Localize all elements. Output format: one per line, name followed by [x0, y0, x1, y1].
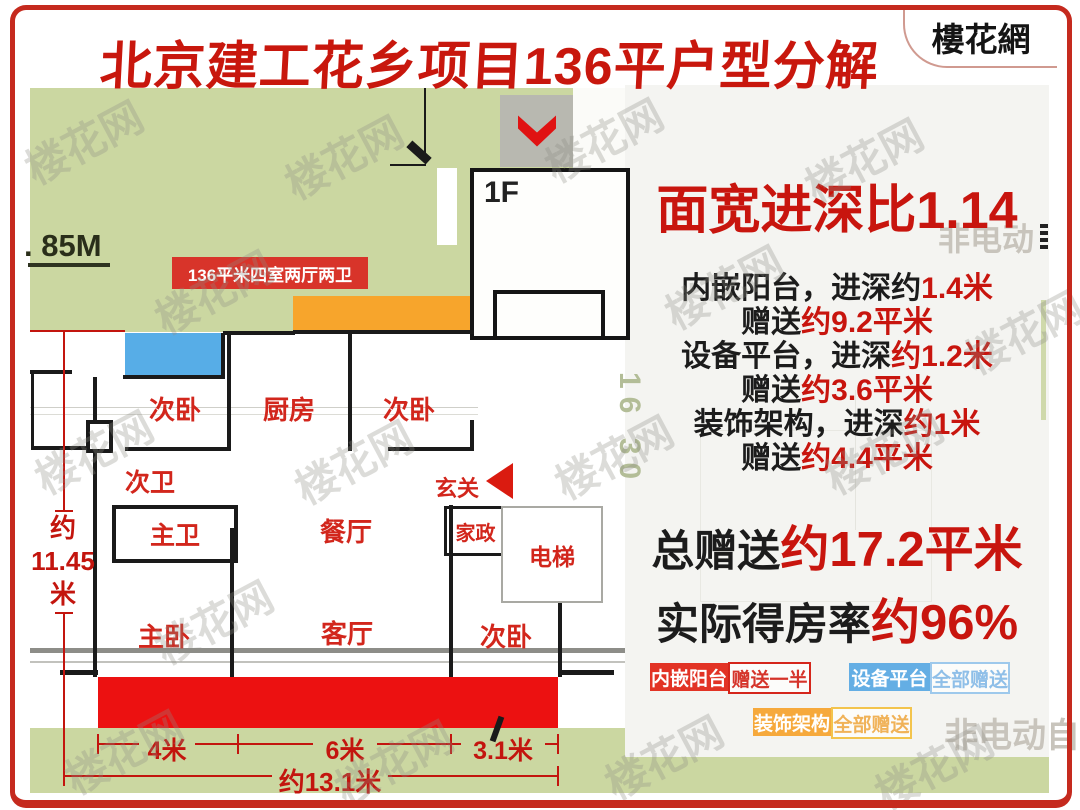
plan-white-topright [573, 88, 625, 168]
wall [31, 446, 87, 450]
wall [348, 333, 352, 451]
rate-line: 实际得房率约96% [625, 583, 1049, 654]
red-topline [30, 330, 125, 332]
dim-label-vertical: 约 11.45 米 [28, 512, 98, 611]
room-label: 次卧 [123, 390, 227, 427]
chevron-down-icon [512, 111, 562, 151]
dim-label: 3.1米 [459, 731, 547, 767]
total-giveaway-line: 总赠送约17.2平米 [625, 510, 1049, 581]
cad-vertical-line [424, 88, 426, 160]
info-line-black: 内嵌阳台，进深约 [681, 272, 921, 305]
site-logo: 樓花網 [903, 8, 1057, 68]
room-label-elevator: 电梯 [529, 538, 575, 572]
info-line-black: 赠送 [741, 442, 801, 475]
legend-equipment-name: 设备平台 [849, 663, 930, 691]
legend-decor-name: 装饰架构 [753, 708, 831, 736]
info-line: 赠送约3.6平米 [625, 374, 1049, 408]
rail-line-thin [30, 661, 625, 663]
dim-line [98, 743, 139, 745]
total-red: 约17.2平米 [780, 523, 1022, 577]
elevation-underline [28, 263, 110, 267]
dim-text: 11.45 [28, 545, 98, 578]
legend-equipment-value: 全部赠送 [930, 662, 1010, 694]
dim-tick [55, 612, 73, 614]
wall [558, 601, 562, 677]
room-label: 次卧 [456, 617, 556, 654]
room-label: 餐厅 [298, 512, 394, 549]
entry-arrow-icon [486, 463, 513, 499]
dim-line [195, 743, 313, 745]
gray-entry-box [500, 95, 573, 167]
room-label-housekeeping: 家政 [456, 517, 496, 546]
legend-decor-value: 全部赠送 [831, 707, 912, 739]
info-line-red: 约3.6平米 [801, 374, 933, 407]
elevator-box: 电梯 [501, 506, 603, 603]
legend-balcony-name: 内嵌阳台 [650, 663, 728, 691]
wall [293, 330, 474, 334]
dim-text: 约 [28, 512, 98, 545]
dim-line-vertical [63, 614, 65, 776]
wall [221, 333, 225, 379]
door-jamb [437, 168, 457, 245]
wall [558, 670, 614, 675]
dim-line [377, 743, 461, 745]
wall [388, 447, 474, 451]
info-line: 赠送约4.4平米 [625, 442, 1049, 476]
wall [223, 331, 295, 335]
panel-green-strip [625, 757, 1049, 793]
room-label: 客厅 [294, 614, 400, 651]
info-line-red: 1.4米 [921, 272, 993, 305]
legend-balcony-value: 赠送一半 [728, 662, 811, 694]
info-line-black: 装饰架构，进深 [694, 408, 904, 441]
dim-text: 米 [28, 578, 98, 611]
info-line: 设备平台，进深约1.2米 [625, 340, 1049, 374]
wall [30, 370, 72, 374]
equipment-platform-zone [125, 333, 223, 377]
room-label: 次卫 [110, 463, 190, 499]
window-box [86, 420, 113, 453]
room-label: 厨房 [235, 390, 343, 427]
wall [227, 333, 231, 451]
ratio-headline: 面宽进深比1.14 [625, 168, 1049, 243]
dim-line [388, 775, 558, 777]
info-line: 内嵌阳台，进深约1.4米 [625, 272, 1049, 306]
decor-structure-zone [293, 296, 473, 333]
wall [123, 375, 225, 379]
info-line: 赠送约9.2平米 [625, 306, 1049, 340]
unit-type-label: 136平米四室两厅两卫 [188, 261, 352, 286]
info-line-black: 赠送 [741, 306, 801, 339]
wall [31, 372, 34, 448]
floor-label: 1F [484, 176, 519, 210]
wall [60, 670, 98, 675]
room-label: 次卧 [355, 390, 463, 427]
housekeeping-box: 家政 [444, 506, 504, 556]
dim-label: 4米 [139, 731, 195, 767]
wall [125, 447, 231, 451]
room-label: 主卧 [112, 617, 216, 654]
info-line-red: 约1.2米 [891, 340, 993, 373]
dim-line-vertical [63, 332, 65, 512]
info-line: 装饰架构，进深约1米 [625, 408, 1049, 442]
room-label: 玄关 [430, 471, 484, 503]
info-line-red: 约4.4平米 [801, 442, 933, 475]
total-black: 总赠送 [651, 528, 780, 576]
infographic-canvas: 1F . 85M 136平米四室两厅两卫 主卫 家政 电梯 次卧 [0, 0, 1080, 810]
balcony-giveaway-zone [98, 677, 558, 728]
room-label-master-bath: 主卫 [150, 516, 200, 552]
stairwell-inner-box [493, 290, 605, 336]
elevation-label: . 85M [24, 228, 102, 264]
rate-black: 实际得房率 [656, 601, 871, 649]
info-line-red: 约1米 [904, 408, 981, 441]
dim-label-total-width: 约13.1米 [268, 762, 392, 799]
dim-line [64, 775, 272, 777]
bg-text-right-bottom: 非电动自 [944, 708, 1080, 757]
rate-red: 约96% [871, 596, 1018, 650]
master-bath-box: 主卫 [112, 505, 238, 563]
wall [470, 420, 474, 451]
info-line-black: 设备平台，进深 [681, 340, 891, 373]
cad-hline [390, 164, 426, 166]
info-line-black: 赠送 [741, 374, 801, 407]
unit-type-badge: 136平米四室两厅两卫 [172, 257, 368, 289]
page-title: 北京建工花乡项目136平户型分解 [53, 24, 926, 86]
info-line-red: 约9.2平米 [801, 306, 933, 339]
